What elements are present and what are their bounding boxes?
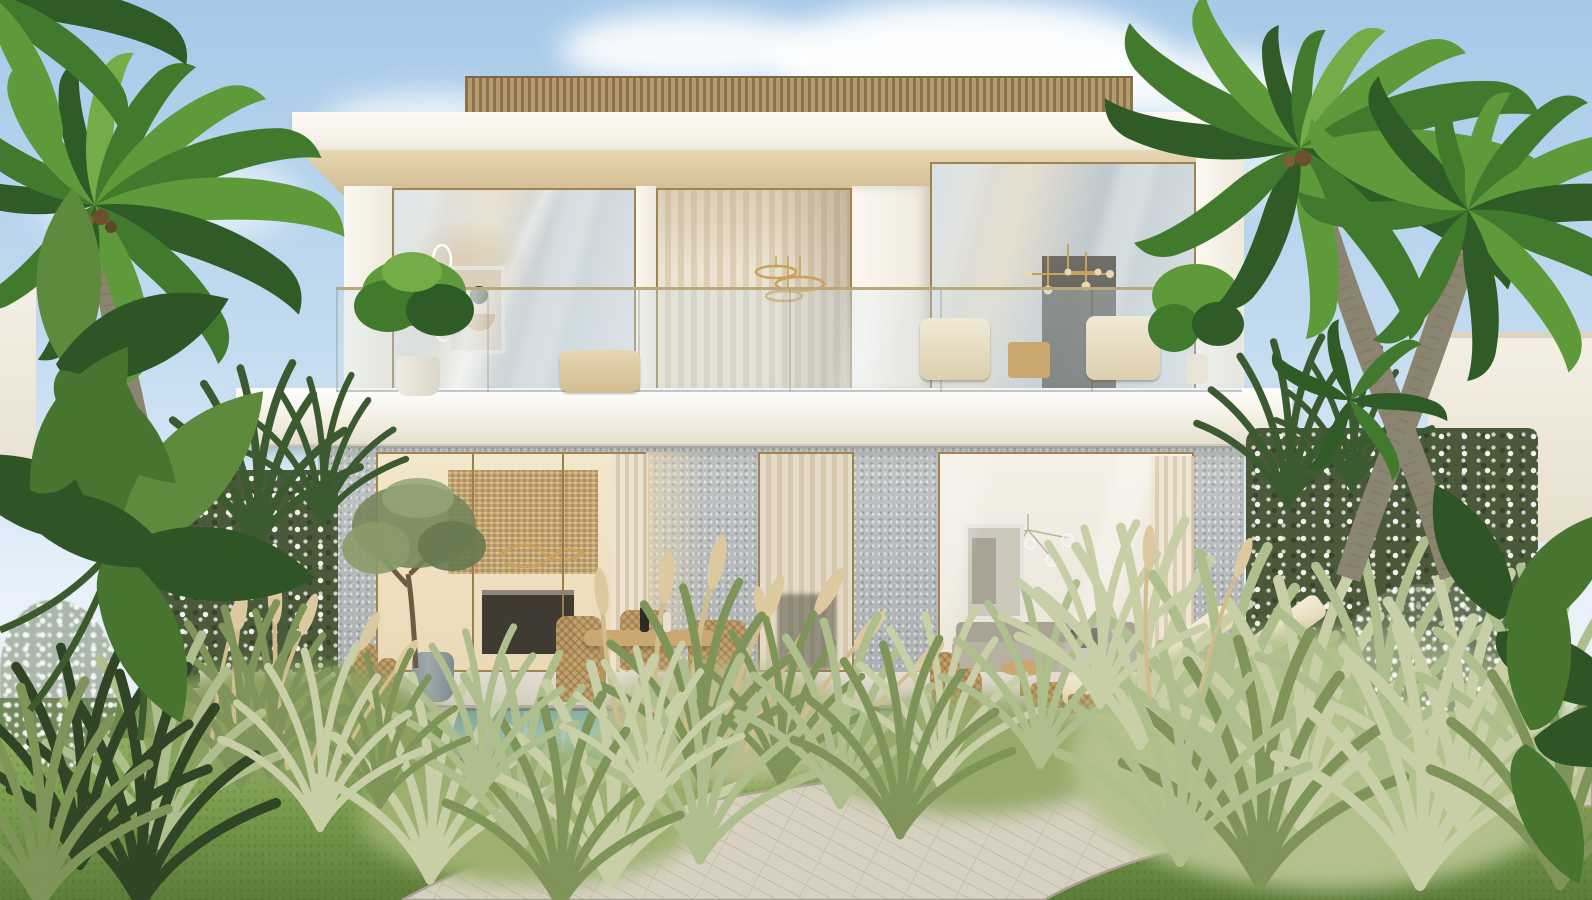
monstera-foliage-right bbox=[1440, 500, 1592, 840]
banana-foliage-left bbox=[0, 240, 340, 800]
villa-render-scene bbox=[0, 0, 1592, 900]
